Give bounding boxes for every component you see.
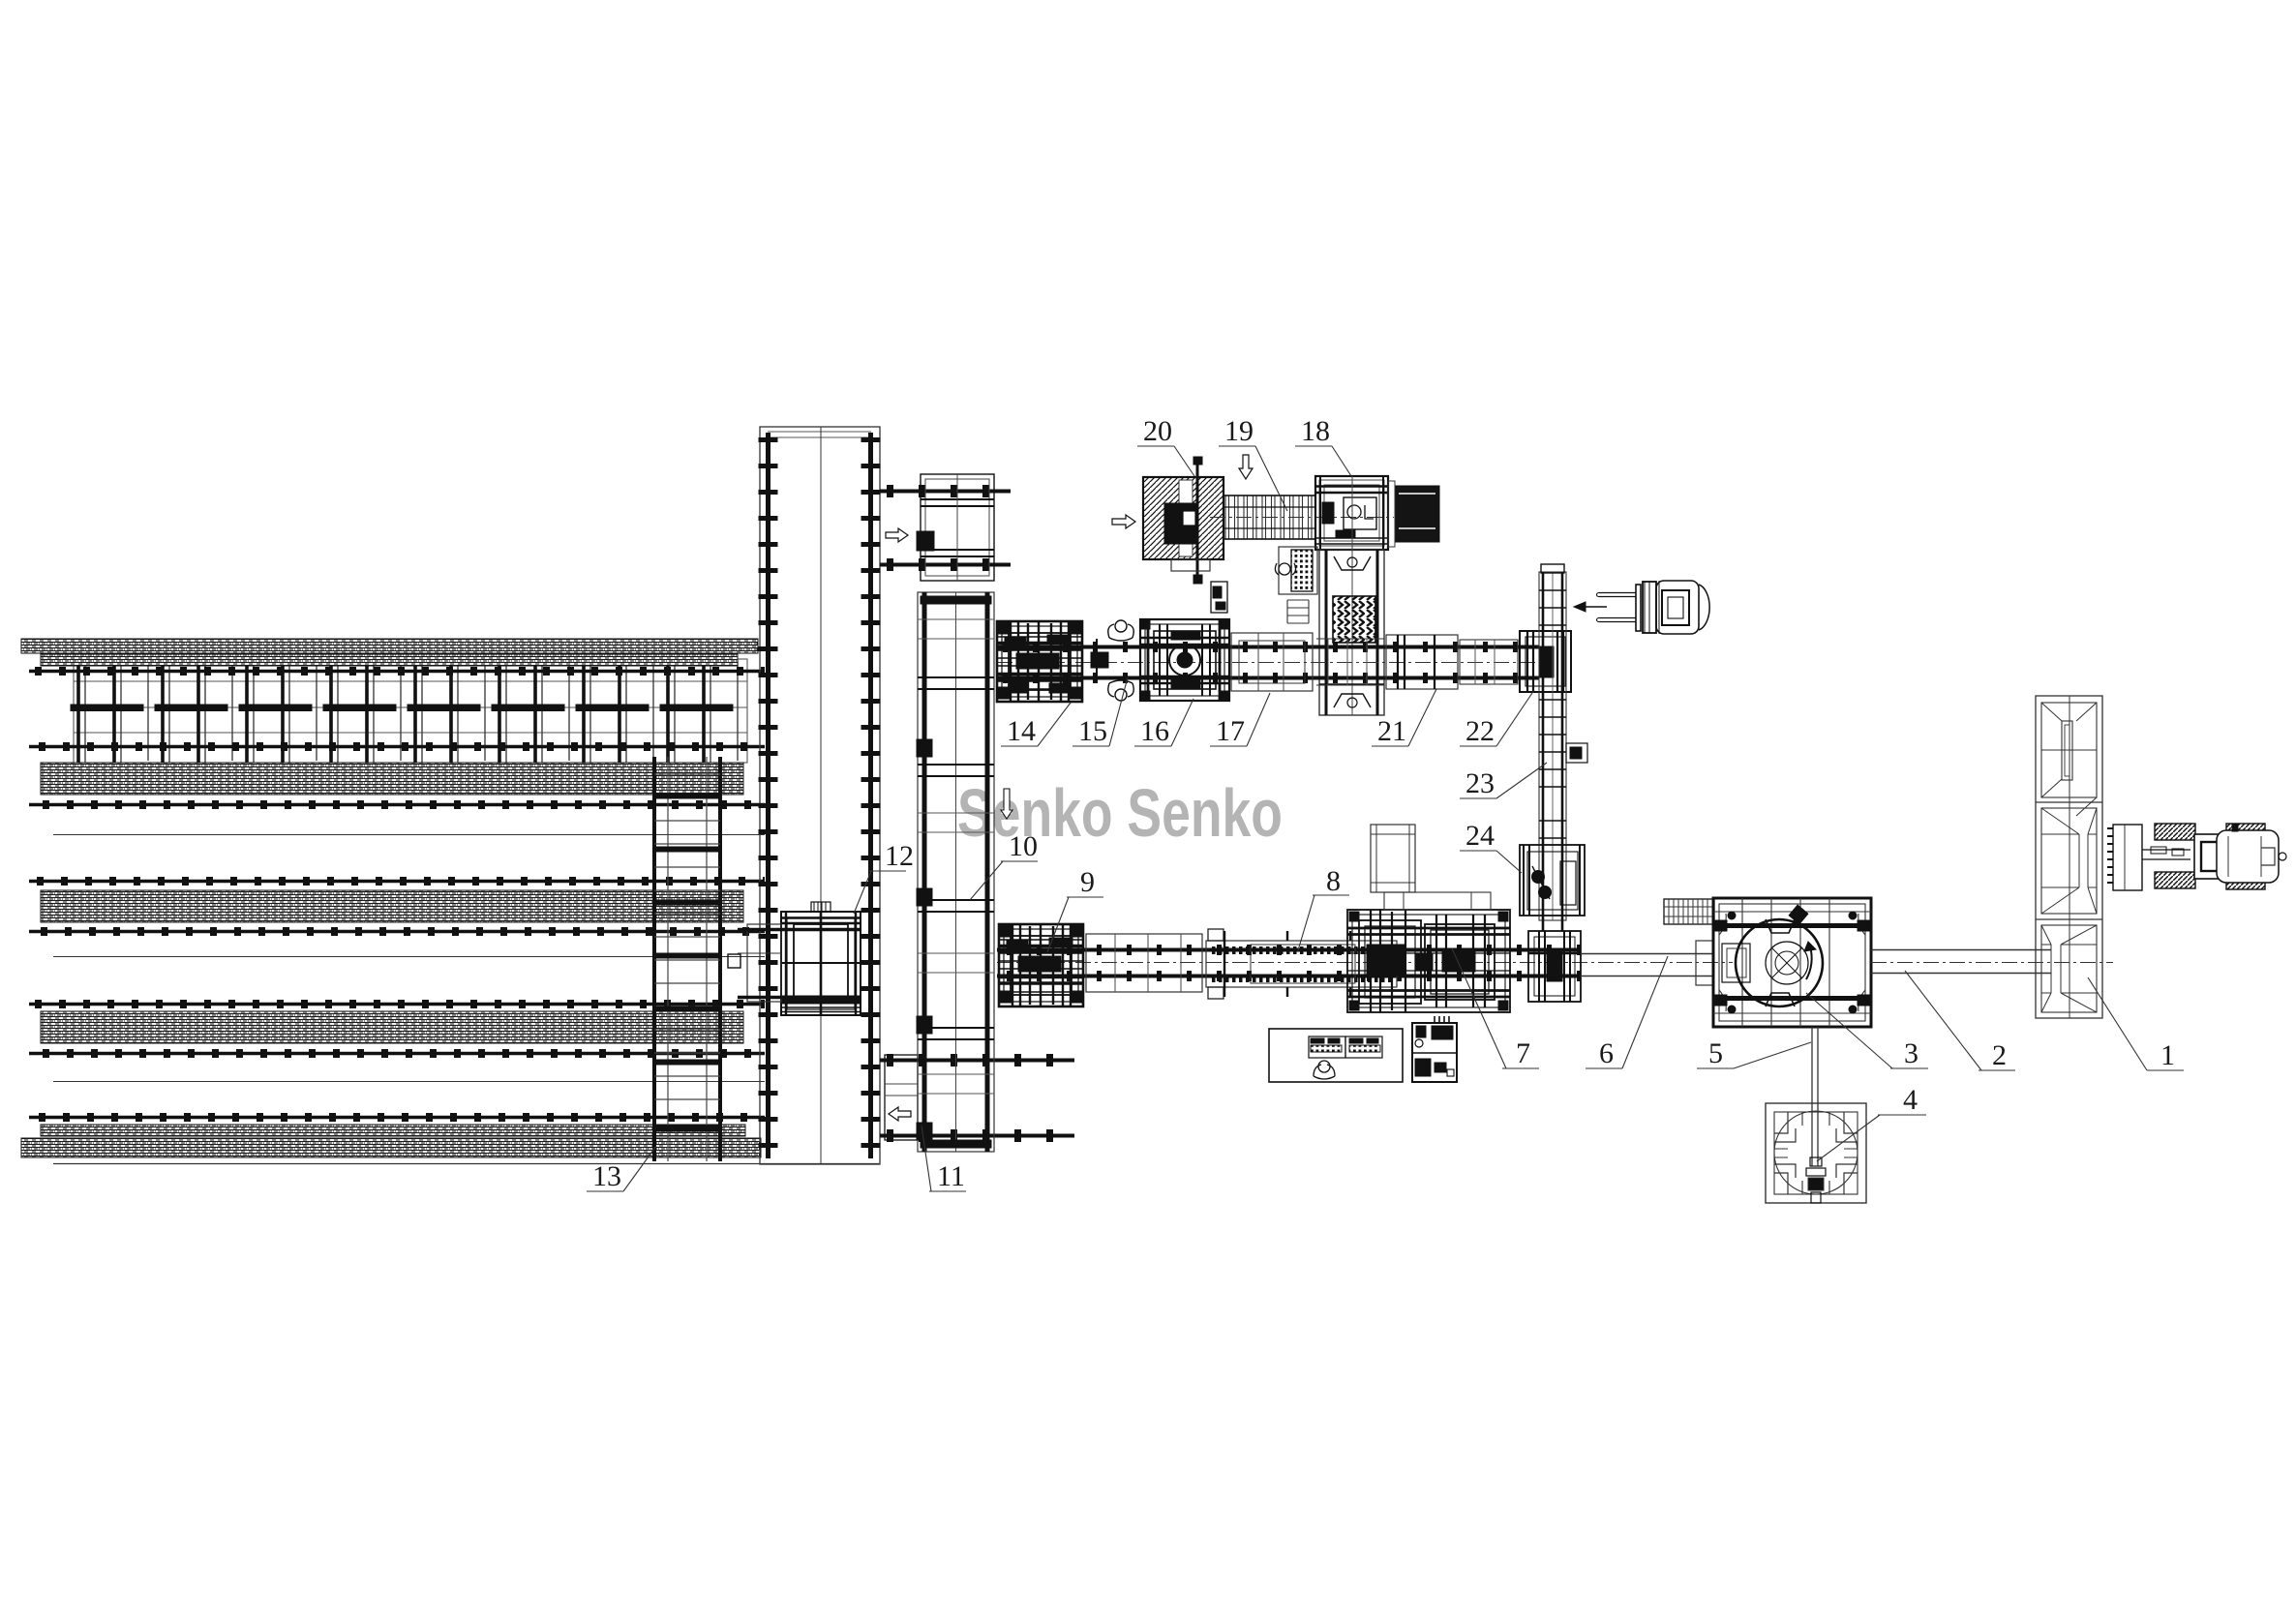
svg-text:22: 22 xyxy=(1465,715,1495,747)
svg-text:11: 11 xyxy=(937,1160,965,1192)
svg-text:18: 18 xyxy=(1301,415,1330,447)
svg-text:7: 7 xyxy=(1516,1037,1530,1069)
svg-text:16: 16 xyxy=(1140,715,1169,747)
svg-text:17: 17 xyxy=(1216,715,1245,747)
svg-text:1: 1 xyxy=(2160,1039,2175,1071)
svg-text:20: 20 xyxy=(1143,415,1172,447)
svg-text:24: 24 xyxy=(1465,820,1495,852)
svg-text:13: 13 xyxy=(592,1160,621,1192)
svg-text:3: 3 xyxy=(1904,1037,1918,1069)
svg-text:23: 23 xyxy=(1465,767,1495,799)
svg-text:6: 6 xyxy=(1599,1037,1614,1069)
svg-text:15: 15 xyxy=(1078,715,1107,747)
svg-text:4: 4 xyxy=(1903,1084,1918,1116)
svg-text:12: 12 xyxy=(885,840,914,872)
svg-text:21: 21 xyxy=(1377,715,1406,747)
svg-text:2: 2 xyxy=(1992,1039,2007,1071)
svg-text:19: 19 xyxy=(1224,415,1254,447)
svg-text:9: 9 xyxy=(1080,866,1095,898)
svg-text:14: 14 xyxy=(1007,715,1036,747)
svg-text:5: 5 xyxy=(1708,1037,1723,1069)
svg-text:8: 8 xyxy=(1326,865,1341,897)
svg-text:10: 10 xyxy=(1009,830,1038,862)
